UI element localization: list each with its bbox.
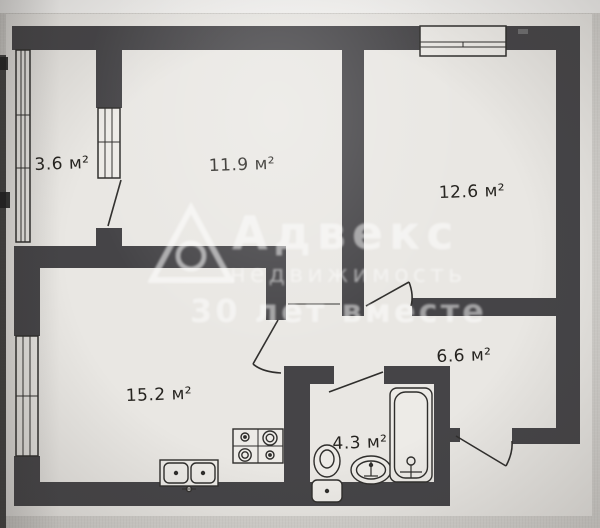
wall-smudge (518, 29, 528, 34)
wall-rooms-divider (342, 50, 364, 316)
wall-top-left (12, 26, 420, 50)
floorplan-drawing (0, 0, 600, 528)
window-balcony-partition (98, 108, 120, 178)
stove-icon (233, 429, 283, 463)
wall-bath-right (434, 384, 450, 506)
wall-room12-hall (412, 298, 556, 316)
photo-edge-dash-top (0, 57, 8, 70)
room-label-room-11-9: 11.9 м² (208, 154, 275, 176)
wall-kitchen-top (14, 246, 270, 268)
wall-right-outer (556, 26, 580, 444)
washbasin-icon (351, 456, 391, 484)
wall-kitchen-left-upper (14, 268, 40, 336)
wall-bath-kitchen-divider (284, 372, 310, 506)
wall-kitchen-entry (266, 246, 286, 320)
photo-edge-dash (0, 192, 10, 208)
photo-edge-left (0, 55, 6, 528)
window-balcony-glazing (16, 50, 30, 242)
room-label-kitchen-living: 15.2 м² (125, 384, 192, 406)
wall-balcony-partition-top (96, 50, 122, 108)
wall-bottom (14, 482, 450, 506)
room-label-hallway: 6.6 м² (436, 345, 492, 367)
room-label-room-12-6: 12.6 м² (438, 181, 505, 203)
window-kitchen (16, 336, 38, 456)
room-label-bathroom: 4.3 м² (332, 432, 388, 454)
wall-bath-top-left (284, 366, 334, 384)
wall-bath-top-right (384, 366, 450, 384)
floorplan-photo: 3.6 м² 11.9 м² 12.6 м² 15.2 м² 6.6 м² 4.… (0, 0, 600, 528)
wall-entrance (512, 428, 580, 444)
room-label-balcony: 3.6 м² (34, 153, 90, 175)
wall-entrance-jamb (450, 428, 460, 442)
window-room12-top (420, 26, 506, 56)
bathtub-icon (390, 388, 432, 482)
